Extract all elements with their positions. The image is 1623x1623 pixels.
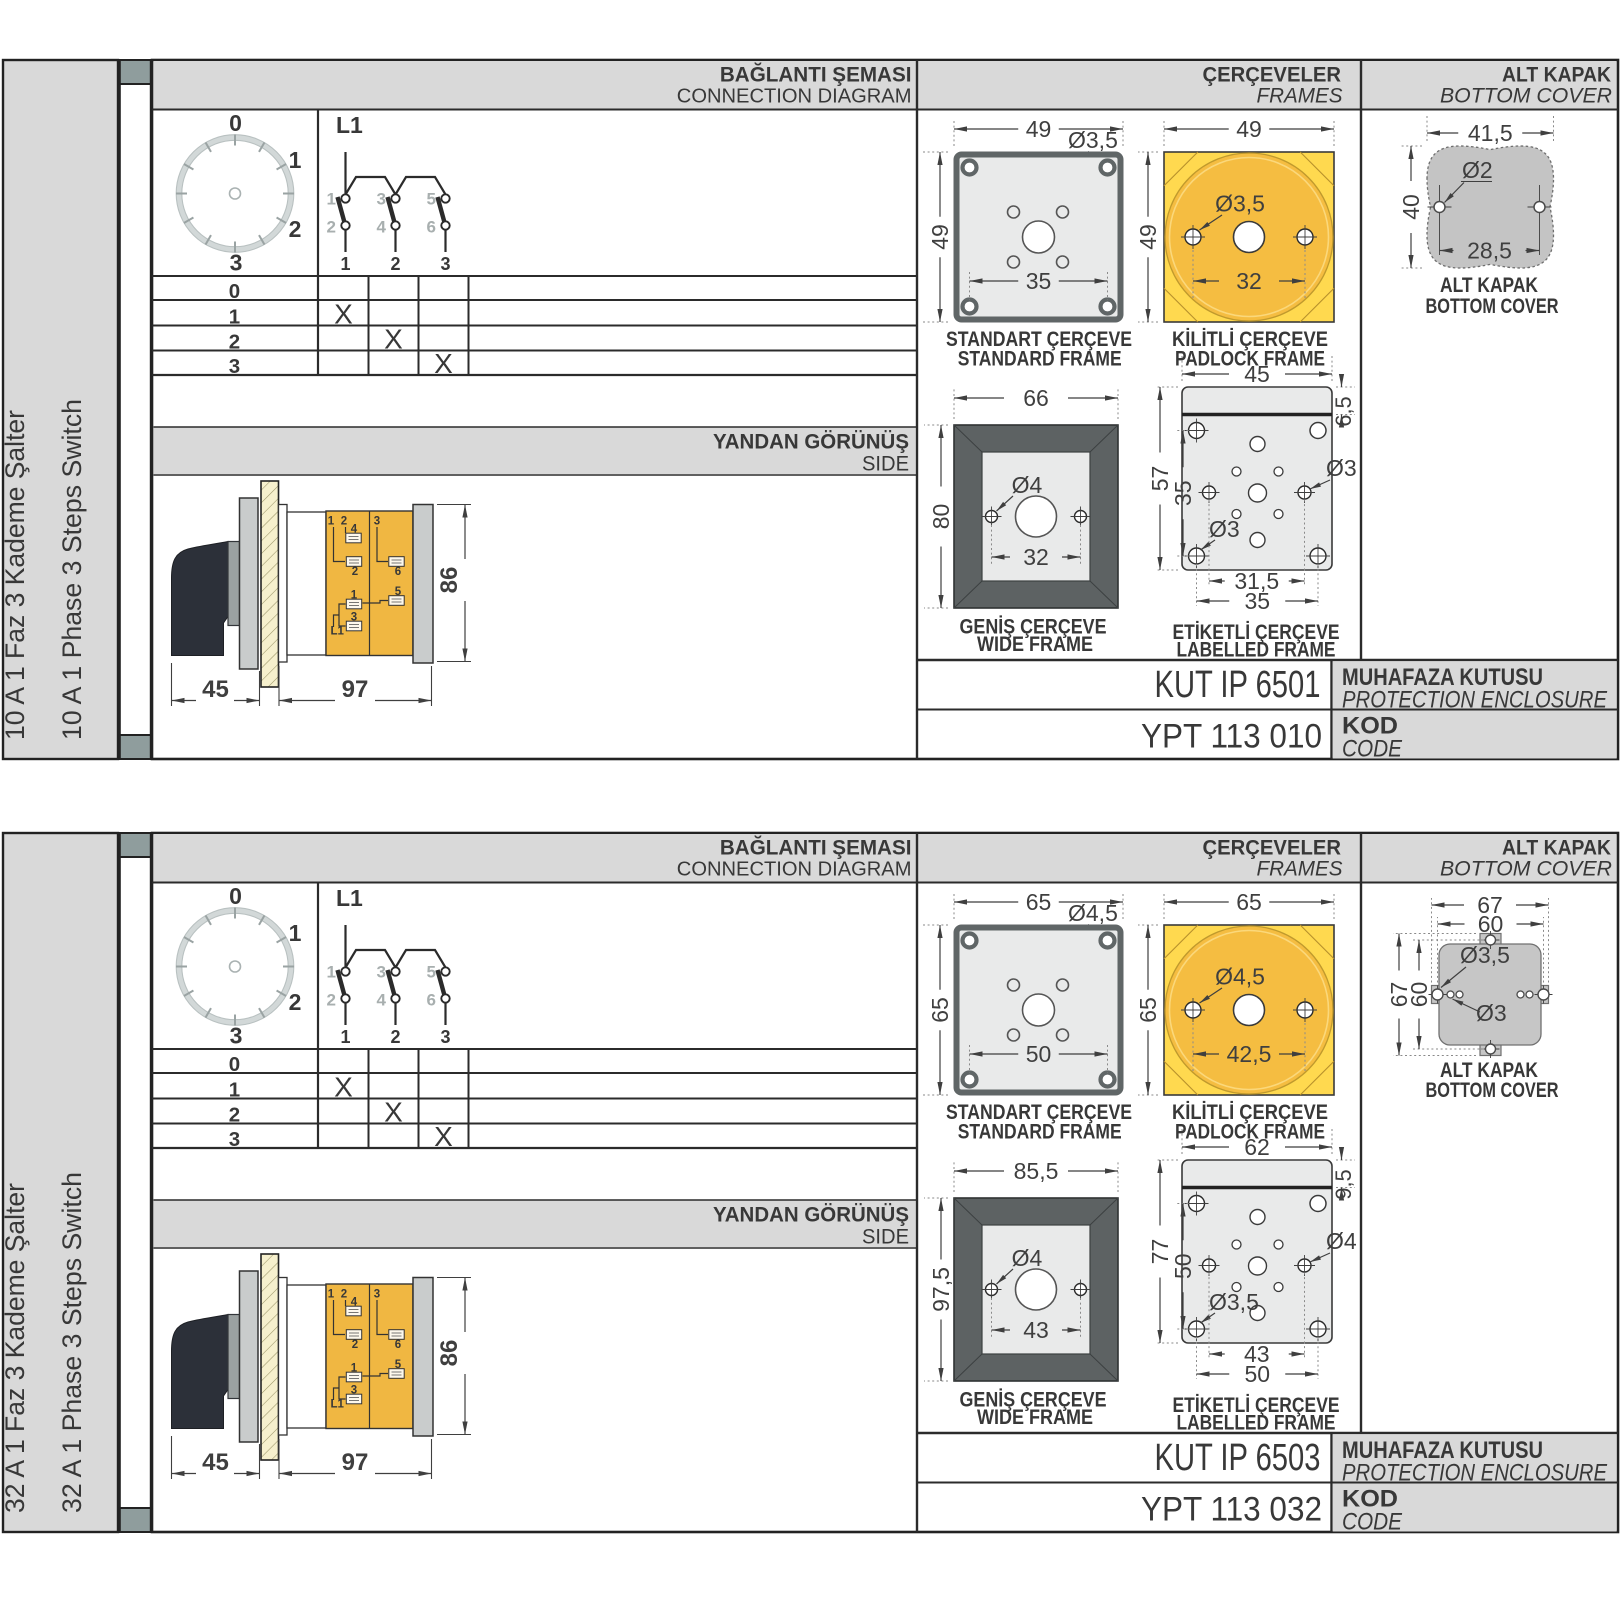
svg-text:2: 2 [341,516,347,528]
svg-text:43: 43 [1023,1317,1049,1343]
svg-text:2: 2 [289,216,302,242]
svg-text:Ø3,5: Ø3,5 [1460,942,1510,968]
svg-text:3: 3 [440,1027,450,1047]
svg-text:1: 1 [229,306,240,329]
svg-text:BOTTOM COVER: BOTTOM COVER [1426,294,1559,318]
svg-text:49: 49 [1236,116,1262,142]
svg-text:2: 2 [229,1104,240,1127]
svg-text:Ø3,5: Ø3,5 [1068,127,1118,153]
svg-text:32: 32 [1023,544,1049,570]
svg-text:2: 2 [327,218,336,237]
svg-text:X: X [384,1096,403,1127]
svg-text:0: 0 [229,280,240,303]
svg-text:CONNECTION DIAGRAM: CONNECTION DIAGRAM [677,85,912,108]
svg-text:FRAMES: FRAMES [1257,84,1344,108]
svg-text:Ø3: Ø3 [1209,516,1240,542]
svg-text:4: 4 [351,1297,358,1309]
svg-text:4: 4 [351,524,358,536]
svg-text:LABELLED FRAME: LABELLED FRAME [1177,1411,1336,1435]
svg-text:3: 3 [377,963,386,982]
svg-text:35: 35 [1170,480,1196,506]
svg-text:1: 1 [340,1027,350,1047]
svg-text:50: 50 [1026,1041,1052,1067]
svg-text:3: 3 [230,250,243,276]
svg-text:X: X [434,1121,453,1152]
svg-text:42,5: 42,5 [1227,1041,1272,1067]
svg-text:CODE: CODE [1342,1509,1403,1536]
svg-text:1: 1 [340,254,350,274]
svg-text:1: 1 [289,920,302,946]
svg-text:45: 45 [1244,361,1270,387]
svg-text:1: 1 [229,1079,240,1102]
svg-text:3: 3 [377,190,386,209]
svg-text:49: 49 [1026,116,1052,142]
svg-text:85,5: 85,5 [1014,1158,1059,1184]
svg-text:3: 3 [351,1385,357,1397]
svg-text:Ø3: Ø3 [1326,455,1357,481]
svg-text:65: 65 [1026,889,1052,915]
svg-text:2: 2 [341,1289,347,1301]
svg-text:Ø4: Ø4 [1012,1245,1043,1271]
svg-text:2: 2 [352,566,358,578]
svg-text:KUT IP 6501: KUT IP 6501 [1155,664,1321,706]
svg-text:62: 62 [1244,1134,1270,1160]
svg-text:Ø4,5: Ø4,5 [1068,900,1118,926]
svg-text:6: 6 [427,991,436,1010]
svg-text:60: 60 [1406,982,1432,1008]
svg-text:FRAMES: FRAMES [1257,857,1344,881]
svg-text:2: 2 [289,989,302,1015]
svg-text:28,5: 28,5 [1467,238,1512,264]
svg-text:3: 3 [374,1289,380,1301]
svg-text:YANDAN GÖRÜNÜŞ: YANDAN GÖRÜNÜŞ [713,1204,909,1227]
svg-text:Ø4,5: Ø4,5 [1215,964,1265,990]
svg-text:9,5: 9,5 [1331,1169,1356,1200]
svg-text:35: 35 [1244,588,1270,614]
svg-text:10 A 1 Faz 3 Kademe Şalter: 10 A 1 Faz 3 Kademe Şalter [0,410,30,740]
svg-text:WIDE FRAME: WIDE FRAME [977,632,1093,656]
svg-text:49: 49 [927,224,953,250]
svg-text:1: 1 [289,147,302,173]
svg-text:5: 5 [395,586,402,598]
svg-text:1: 1 [328,516,335,528]
svg-text:Ø4: Ø4 [1326,1228,1357,1254]
svg-text:5: 5 [427,963,436,982]
svg-text:32: 32 [1236,268,1262,294]
svg-text:Ø2: Ø2 [1462,157,1493,183]
svg-text:6,5: 6,5 [1331,396,1356,427]
svg-text:SIDE: SIDE [862,1225,909,1249]
svg-text:X: X [434,348,453,379]
svg-text:66: 66 [1023,385,1049,411]
svg-text:65: 65 [1236,889,1262,915]
svg-text:2: 2 [352,1339,358,1351]
svg-text:5: 5 [395,1359,402,1371]
svg-text:L1: L1 [331,1399,345,1411]
svg-text:YPT 113 032: YPT 113 032 [1141,1491,1322,1529]
svg-text:3: 3 [374,516,380,528]
svg-text:PROTECTION ENCLOSURE: PROTECTION ENCLOSURE [1342,1460,1608,1487]
svg-text:3: 3 [440,254,450,274]
svg-text:X: X [334,1071,353,1102]
svg-text:65: 65 [1135,997,1161,1023]
svg-text:1: 1 [351,590,358,602]
svg-text:97: 97 [342,1449,369,1476]
svg-text:4: 4 [377,218,387,237]
svg-text:41,5: 41,5 [1468,120,1513,146]
svg-text:80: 80 [928,504,954,530]
svg-text:6: 6 [395,566,401,578]
svg-text:97: 97 [342,676,369,703]
svg-text:YANDAN GÖRÜNÜŞ: YANDAN GÖRÜNÜŞ [713,431,909,454]
svg-text:YPT 113 010: YPT 113 010 [1141,718,1322,756]
svg-text:45: 45 [202,1449,229,1476]
svg-text:1: 1 [327,963,336,982]
svg-text:3: 3 [351,612,357,624]
svg-text:L1: L1 [336,885,363,911]
svg-text:Ø3,5: Ø3,5 [1209,1289,1259,1315]
svg-text:49: 49 [1135,224,1161,250]
svg-text:LABELLED FRAME: LABELLED FRAME [1177,638,1336,662]
svg-text:0: 0 [229,1053,240,1076]
svg-text:BAĞLANTI ŞEMASI: BAĞLANTI ŞEMASI [720,63,912,87]
svg-text:6: 6 [395,1339,401,1351]
svg-text:50: 50 [1170,1253,1196,1279]
svg-text:65: 65 [927,997,953,1023]
svg-text:35: 35 [1026,268,1052,294]
svg-text:2: 2 [229,331,240,354]
svg-text:2: 2 [390,1027,400,1047]
svg-text:50: 50 [1244,1361,1270,1387]
svg-text:L1: L1 [336,112,363,138]
svg-text:BOTTOM COVER: BOTTOM COVER [1440,857,1612,881]
svg-text:Ø3: Ø3 [1476,1000,1507,1026]
svg-text:32 A 1 Phase 3 Steps Switch: 32 A 1 Phase 3 Steps Switch [57,1172,87,1513]
svg-text:CODE: CODE [1342,736,1403,763]
svg-text:Ø4: Ø4 [1012,472,1043,498]
svg-text:WIDE FRAME: WIDE FRAME [977,1405,1093,1429]
svg-text:X: X [384,323,403,354]
svg-text:86: 86 [436,1340,463,1367]
svg-text:BOTTOM COVER: BOTTOM COVER [1426,1078,1559,1102]
svg-text:Ø3,5: Ø3,5 [1215,191,1265,217]
svg-text:40: 40 [1398,194,1424,220]
svg-text:60: 60 [1478,911,1504,937]
svg-text:X: X [334,298,353,329]
svg-text:2: 2 [327,991,336,1010]
svg-text:1: 1 [328,1289,335,1301]
svg-text:4: 4 [377,991,387,1010]
svg-text:2: 2 [390,254,400,274]
svg-text:97,5: 97,5 [928,1267,954,1312]
svg-text:86: 86 [436,567,463,594]
svg-text:STANDARD FRAME: STANDARD FRAME [958,1120,1122,1144]
svg-text:BAĞLANTI ŞEMASI: BAĞLANTI ŞEMASI [720,836,912,860]
svg-text:6: 6 [427,218,436,237]
svg-text:5: 5 [427,190,436,209]
svg-text:10 A 1 Phase 3 Steps Switch: 10 A 1 Phase 3 Steps Switch [57,399,87,740]
svg-text:0: 0 [229,110,242,136]
svg-text:1: 1 [351,1363,358,1375]
svg-text:KUT IP 6503: KUT IP 6503 [1155,1437,1321,1479]
svg-text:CONNECTION DIAGRAM: CONNECTION DIAGRAM [677,858,912,881]
svg-text:1: 1 [327,190,336,209]
svg-text:BOTTOM COVER: BOTTOM COVER [1440,84,1612,108]
svg-text:45: 45 [202,676,229,703]
svg-text:32 A 1 Faz 3 Kademe Şalter: 32 A 1 Faz 3 Kademe Şalter [0,1183,30,1513]
svg-text:3: 3 [230,1023,243,1049]
svg-text:3: 3 [229,1128,240,1151]
svg-text:3: 3 [229,355,240,378]
svg-text:L1: L1 [331,626,345,638]
svg-text:STANDARD FRAME: STANDARD FRAME [958,347,1122,371]
svg-text:PROTECTION ENCLOSURE: PROTECTION ENCLOSURE [1342,687,1608,714]
svg-text:0: 0 [229,883,242,909]
svg-text:SIDE: SIDE [862,452,909,476]
